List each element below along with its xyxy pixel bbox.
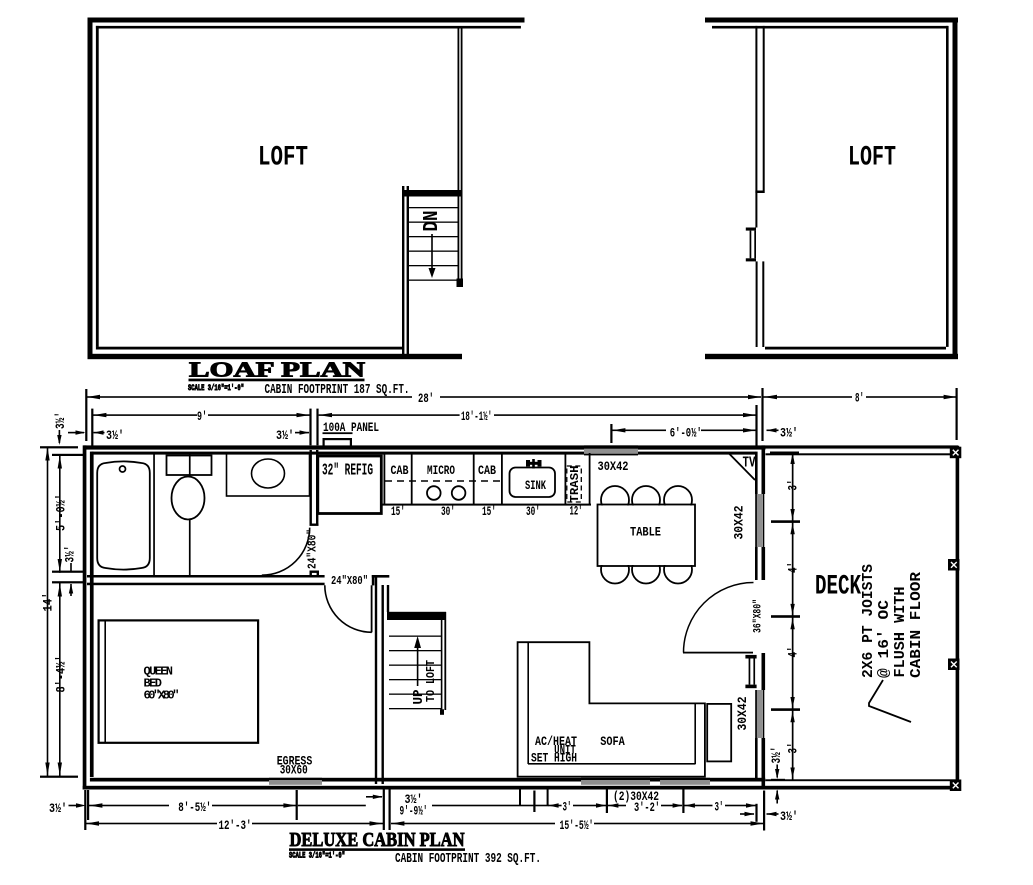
svg-text:3': 3': [786, 480, 800, 491]
svg-text:SOFA: SOFA: [600, 735, 625, 749]
svg-text:9'-9½': 9'-9½': [400, 804, 428, 819]
svg-text:3': 3': [715, 800, 724, 815]
svg-text:30X60: 30X60: [280, 764, 308, 778]
svg-text:LOFT: LOFT: [258, 143, 308, 174]
svg-text:@ 16' OC: @ 16' OC: [876, 600, 893, 678]
svg-text:30X42: 30X42: [598, 459, 629, 474]
svg-text:32" REFIG: 32" REFIG: [322, 462, 373, 481]
svg-text:3½': 3½': [770, 747, 784, 764]
svg-text:SINK: SINK: [525, 478, 546, 493]
svg-text:8'-4½': 8'-4½': [55, 656, 69, 693]
svg-text:30': 30': [441, 505, 455, 519]
svg-text:MICRO: MICRO: [427, 463, 455, 478]
svg-text:LOFT: LOFT: [848, 143, 896, 174]
svg-text:28': 28': [418, 391, 434, 406]
svg-text:3½': 3½': [49, 802, 67, 816]
svg-text:12': 12': [570, 505, 583, 519]
svg-text:3½': 3½': [780, 427, 798, 441]
svg-text:24"X80": 24"X80": [306, 529, 320, 569]
svg-text:2X6 PT JOISTS: 2X6 PT JOISTS: [860, 564, 877, 678]
svg-text:30X42: 30X42: [732, 505, 747, 539]
svg-text:TRASH: TRASH: [568, 466, 582, 503]
svg-text:8'-5½': 8'-5½': [178, 800, 211, 815]
svg-text:24"X80": 24"X80": [331, 574, 368, 588]
svg-text:15': 15': [391, 505, 405, 519]
svg-text:DELUXE CABIN PLAN: DELUXE CABIN PLAN: [290, 830, 465, 851]
svg-text:3': 3': [563, 800, 572, 815]
svg-text:3½': 3½': [64, 546, 78, 563]
svg-text:14': 14': [41, 593, 56, 612]
svg-text:3': 3': [786, 743, 800, 754]
svg-text:TABLE: TABLE: [630, 525, 661, 540]
svg-text:FLUSH WITH: FLUSH WITH: [892, 587, 909, 678]
svg-text:8': 8': [855, 391, 864, 406]
svg-text:LOAF PLAN: LOAF PLAN: [189, 358, 366, 382]
svg-text:DN: DN: [421, 211, 444, 232]
svg-text:3½': 3½': [276, 429, 294, 443]
svg-text:60"X80": 60"X80": [144, 689, 180, 703]
svg-text:SCALE 3/16"=1'-0": SCALE 3/16"=1'-0": [188, 383, 244, 393]
svg-text:12'-3': 12'-3': [219, 818, 252, 833]
svg-text:CAB: CAB: [478, 463, 496, 478]
svg-text:CABIN FLOOR: CABIN FLOOR: [908, 572, 925, 678]
svg-text:TV: TV: [743, 455, 756, 472]
svg-text:3'-2': 3'-2': [634, 800, 660, 815]
svg-text:36"X80": 36"X80": [753, 599, 765, 633]
svg-text:3½': 3½': [54, 412, 68, 429]
svg-text:30X42: 30X42: [735, 696, 750, 730]
svg-text:CAB: CAB: [391, 463, 409, 478]
svg-text:9': 9': [197, 409, 207, 424]
svg-text:DECK: DECK: [815, 572, 861, 603]
svg-text:4': 4': [786, 562, 800, 573]
svg-text:30': 30': [526, 505, 540, 519]
svg-text:TO LOFT: TO LOFT: [424, 660, 438, 702]
svg-text:15': 15': [482, 505, 496, 519]
svg-text:CABIN FOOTPRINT 392 SQ.FT.: CABIN FOOTPRINT 392 SQ.FT.: [395, 851, 541, 867]
svg-text:4': 4': [786, 647, 800, 658]
svg-text:CABIN FOOTPRINT 187 SQ.FT.: CABIN FOOTPRINT 187 SQ.FT.: [265, 382, 410, 398]
svg-text:SET HIGH: SET HIGH: [531, 752, 577, 766]
svg-text:18'-1½': 18'-1½': [461, 409, 492, 424]
svg-text:3½': 3½': [780, 810, 798, 824]
svg-text:5'-0½': 5'-0½': [55, 494, 69, 531]
svg-text:15'-5½': 15'-5½': [560, 818, 594, 833]
svg-text:6'-0½': 6'-0½': [670, 426, 702, 441]
svg-text:3½': 3½': [106, 429, 124, 443]
svg-text:SCALE 3/16"=1'-0": SCALE 3/16"=1'-0": [289, 851, 345, 861]
